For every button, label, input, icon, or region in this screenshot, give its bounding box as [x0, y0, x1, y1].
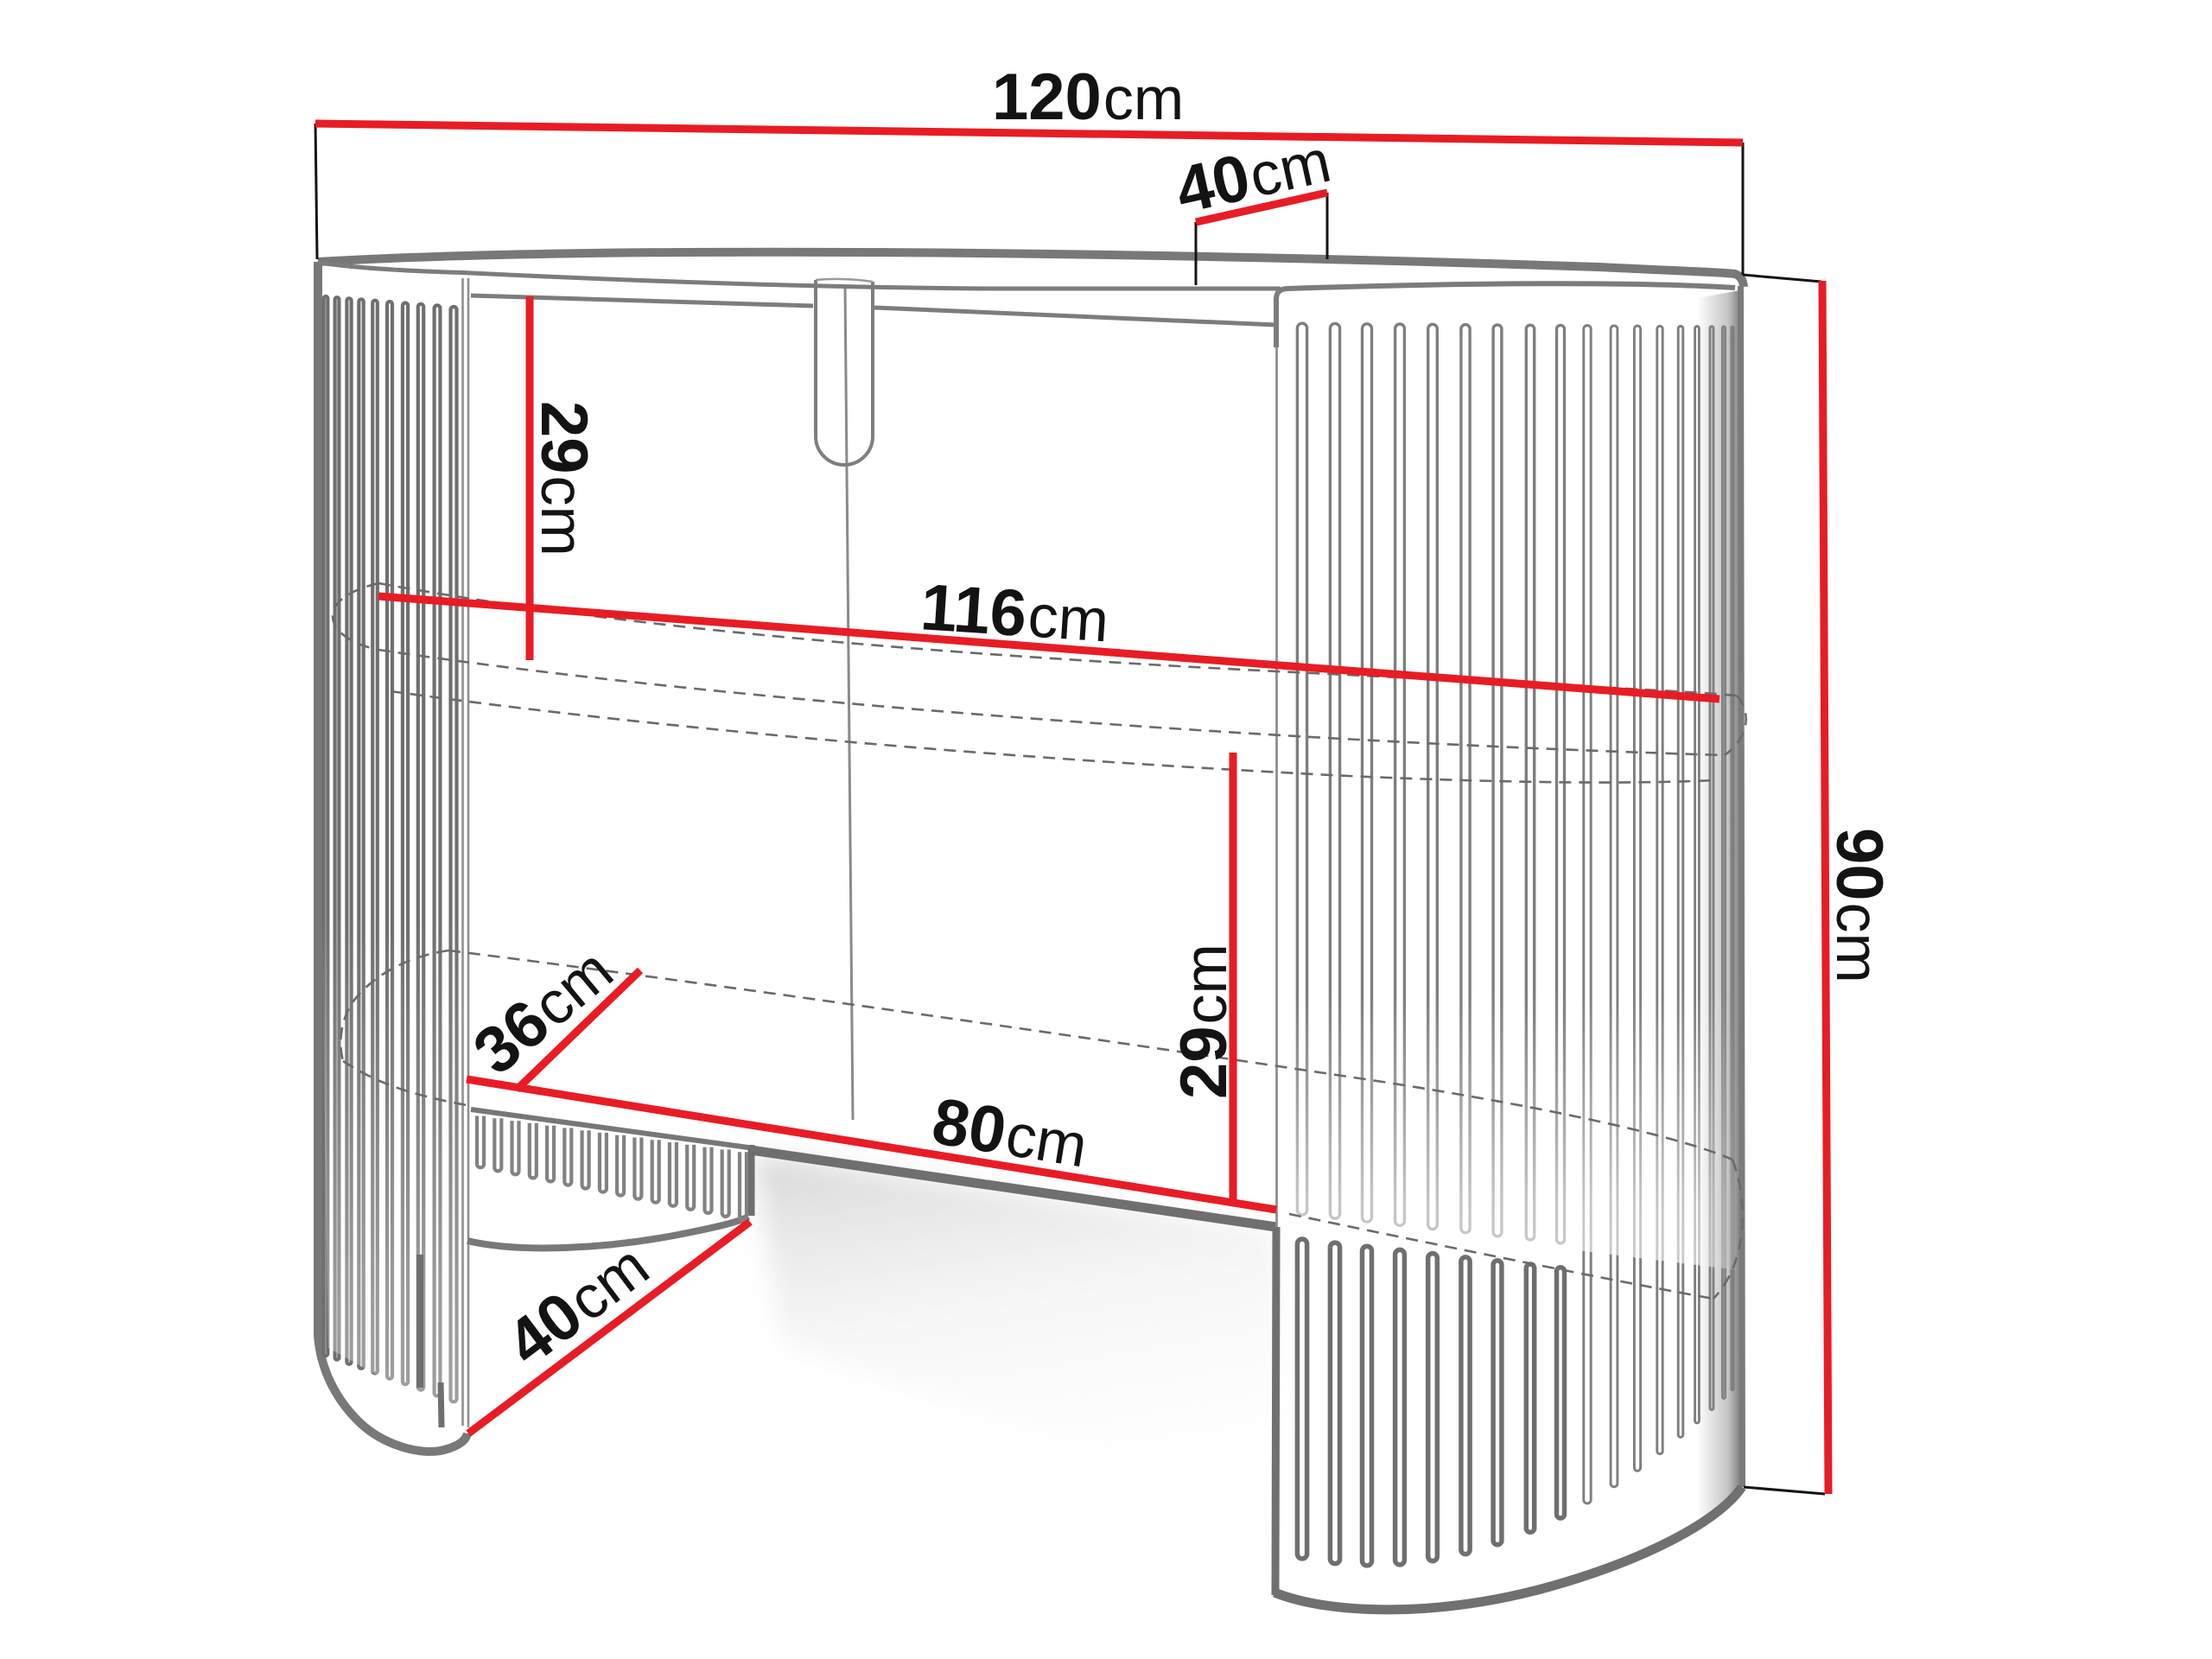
- svg-text:29cm: 29cm: [1167, 944, 1241, 1099]
- svg-text:29cm: 29cm: [527, 401, 601, 556]
- svg-text:90cm: 90cm: [1822, 828, 1896, 983]
- svg-text:120cm: 120cm: [992, 60, 1184, 134]
